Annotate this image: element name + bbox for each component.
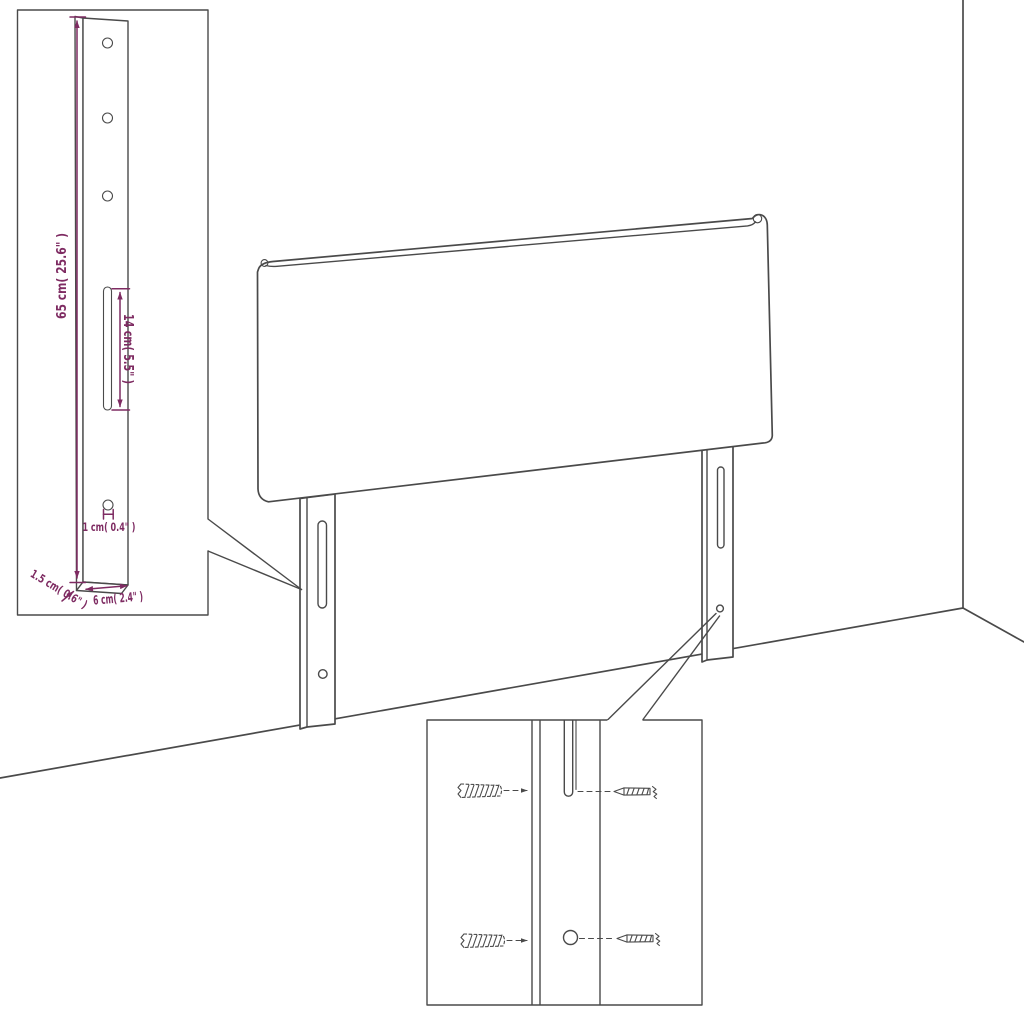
right-leg-hole xyxy=(717,605,724,612)
left-leg-hole xyxy=(319,670,328,679)
assembly-diagram: 65 cm( 25.6" ) 14 cm( 5.5" ) 1 cm( 0.4" … xyxy=(0,0,1024,1024)
callout-line-upper xyxy=(208,519,302,590)
headboard xyxy=(258,214,773,501)
leg-detail-callout xyxy=(208,519,302,590)
assembly-diagram-page: 65 cm( 25.6" ) 14 cm( 5.5" ) 1 cm( 0.4" … xyxy=(0,0,1024,1024)
bracket-hole-middle xyxy=(103,113,113,123)
bracket-side-face xyxy=(75,17,83,591)
leg-detail-inset: 65 cm( 25.6" ) 14 cm( 5.5" ) 1 cm( 0.4" … xyxy=(18,10,209,615)
bracket-hole-top xyxy=(103,38,113,48)
dim-1cm-label: 1 cm( 0.4" ) xyxy=(83,520,136,534)
bracket-slot xyxy=(104,287,112,410)
floor-line-right xyxy=(963,608,1024,642)
right-leg xyxy=(702,446,733,662)
callout-line-left xyxy=(607,614,716,721)
leg-strip-hole xyxy=(564,931,578,945)
mounting-detail-inset xyxy=(427,720,702,1005)
callout-line-lower xyxy=(208,551,302,590)
right-leg-slot xyxy=(718,467,725,548)
left-leg xyxy=(300,494,335,729)
headboard-panel xyxy=(258,215,773,502)
callout-line-right xyxy=(643,616,720,720)
dim-65cm-label: 65 cm( 25.6" ) xyxy=(54,233,70,319)
bracket-hole-lower xyxy=(103,191,113,201)
dim-14cm-label: 14 cm( 5.5" ) xyxy=(120,314,135,384)
left-leg-slot xyxy=(318,521,327,608)
bracket-hole-bottom xyxy=(103,500,113,510)
